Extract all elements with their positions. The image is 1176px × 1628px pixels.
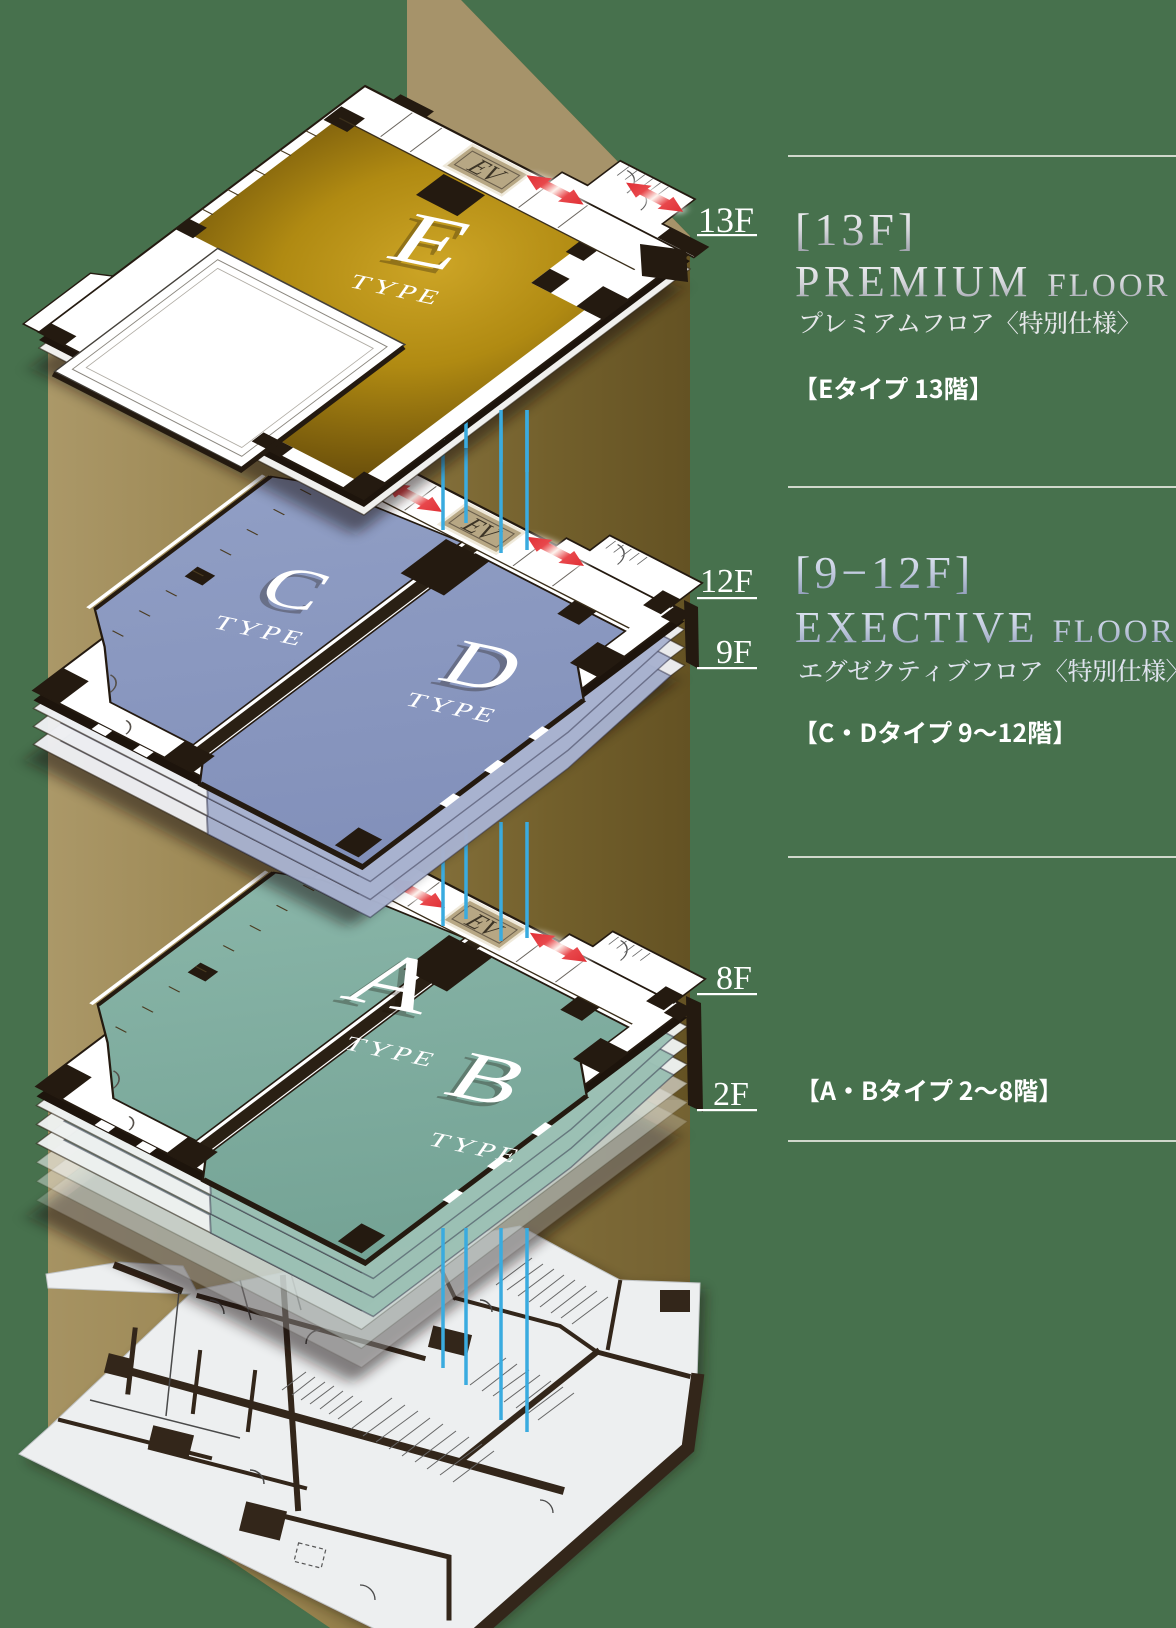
svg-text:[9−12F]: [9−12F]: [795, 547, 974, 598]
svg-text:[13F]: [13F]: [795, 204, 917, 255]
svg-text:9F: 9F: [716, 634, 752, 671]
svg-text:2F: 2F: [713, 1076, 749, 1113]
svg-text:8F: 8F: [716, 960, 752, 997]
svg-text:12F: 12F: [700, 563, 753, 600]
